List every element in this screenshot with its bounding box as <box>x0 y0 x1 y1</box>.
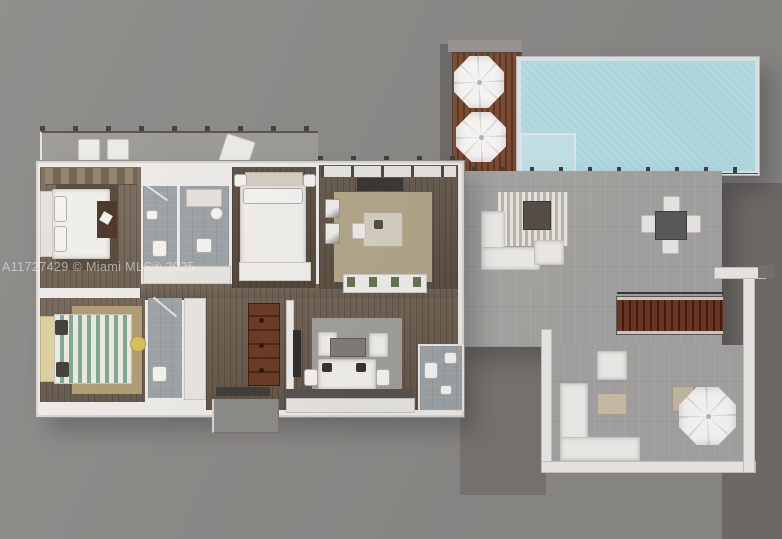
toilet-2 <box>196 238 212 253</box>
wardrobe-handle-2 <box>259 343 264 348</box>
bed2-pillows <box>243 188 303 204</box>
sofa-pillow-2 <box>356 363 366 372</box>
sofa-pillow-1 <box>322 363 332 372</box>
stool <box>130 336 146 352</box>
wall-art-2 <box>325 223 340 244</box>
background-shadow-notch <box>460 345 546 495</box>
toilet-1 <box>152 240 167 257</box>
bed3-pillow-2 <box>56 362 69 377</box>
parapet-wall-right <box>743 272 755 473</box>
washbasin-2 <box>210 207 223 220</box>
master-closet <box>45 168 137 185</box>
door-mat <box>216 387 270 396</box>
dining-chair-top <box>663 196 680 212</box>
patio-coffee-table <box>597 393 627 415</box>
den-window <box>321 166 456 177</box>
parapet-wall-bottom <box>541 461 756 473</box>
dining-chair-right <box>686 215 701 233</box>
wall-art-1 <box>325 199 340 218</box>
master-pillow-2 <box>54 226 67 252</box>
living-tv <box>293 330 301 377</box>
window-sill <box>286 398 415 413</box>
floorplan-image: A11727429 © Miami MLS® 2025 <box>0 0 782 539</box>
wardrobe <box>248 303 280 386</box>
vanity-2 <box>186 189 222 207</box>
side-table-2 <box>376 369 390 386</box>
mls-watermark: A11727429 © Miami MLS® 2025 <box>2 260 195 274</box>
powder-sink <box>444 352 457 364</box>
living-armchair-2 <box>369 333 388 357</box>
desk <box>363 212 403 247</box>
powder-toilet <box>424 362 438 379</box>
pool <box>516 56 760 176</box>
sink-1 <box>146 210 158 220</box>
wardrobe-handle-3 <box>259 368 264 373</box>
parapet-wall-left <box>541 329 552 465</box>
powder-fixture <box>440 385 452 395</box>
den-tv <box>357 178 403 191</box>
closet-strip <box>184 298 206 400</box>
outdoor-loveseat <box>534 240 564 265</box>
desk-items <box>374 220 383 229</box>
dining-chair-bottom <box>662 238 679 254</box>
master-pillow-1 <box>54 196 67 222</box>
toilet-3 <box>152 366 167 382</box>
planter-plants <box>347 277 421 287</box>
dining-chair-left <box>641 215 656 233</box>
staircase <box>617 297 723 334</box>
side-table-1 <box>304 369 318 386</box>
parapet-stub-cap <box>758 265 774 278</box>
desk-chair <box>352 223 366 239</box>
patio-armchair <box>597 351 627 380</box>
fire-table <box>523 201 551 230</box>
wardrobe-handle-1 <box>259 318 264 323</box>
credenza <box>239 262 311 281</box>
stair-rail <box>617 292 723 294</box>
balcony-chair-1 <box>78 139 100 162</box>
outdoor-sofa-bottom <box>481 247 540 270</box>
living-coffee-table <box>330 338 366 357</box>
bathroom-3-floor <box>148 298 182 398</box>
dining-table <box>655 211 687 240</box>
window-frame <box>286 389 413 398</box>
entry-stoop <box>212 399 279 433</box>
balcony-chair-2 <box>107 139 129 160</box>
bed3-pillow-1 <box>55 320 68 335</box>
patio-sofa-bottom <box>560 437 640 461</box>
